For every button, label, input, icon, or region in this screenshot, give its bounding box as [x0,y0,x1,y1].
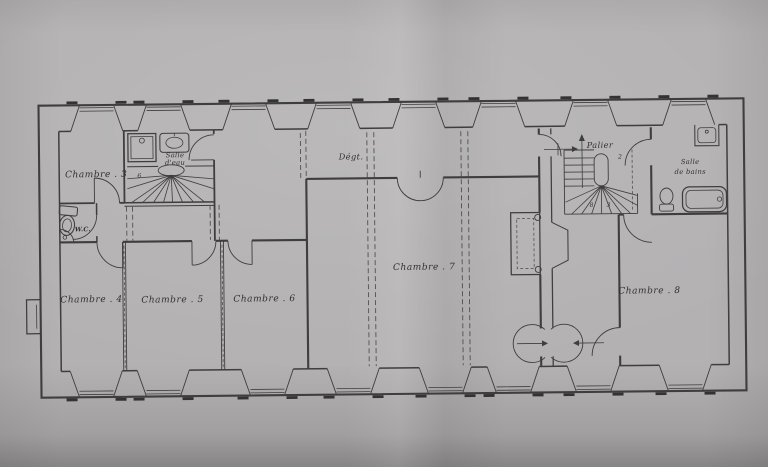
room-label-salle-bains-line1: Salle [681,158,700,166]
door-swing-chambre5 [192,241,216,265]
window [133,370,193,399]
direction-arrows [515,143,604,347]
arrow-left-icon [573,340,579,346]
double-door-swing-chambre7 [397,170,443,200]
door-swing-chambre3 [94,178,119,203]
door-swings [72,130,653,367]
stair-number-top: 2 [617,154,622,161]
flue-niche [552,222,568,268]
sink-salle-bains [695,125,719,146]
window [563,366,623,395]
arrow-right-icon [542,340,548,346]
window [658,96,718,125]
stair-number-b: 3 [607,202,611,209]
window [468,98,528,127]
window [66,102,126,131]
interior-walls [59,124,729,371]
window [237,369,297,398]
exterior-walls [24,98,746,398]
room-label-chambre-3: Chambre . 3 [65,170,127,181]
room-label-chambre-5: Chambre . 5 [141,295,203,306]
room-label-palier: Palier [586,140,614,150]
stair-number-left: 6 [137,173,141,180]
up-arrow-icon [579,134,585,141]
room-label-wc: W.C. [75,226,91,233]
stair-number-a: 8 [590,202,594,209]
door-swing-chambre6 [228,240,252,264]
door-swing-salle-bains [625,139,651,165]
door-swing-chambre8-west [592,328,620,356]
fireplace [511,212,542,274]
window [388,99,448,128]
window [323,368,383,397]
door-swing-chambre8-north [624,214,652,242]
door-swing-salle-eau [189,135,214,160]
room-label-degagement: Dégt. [338,151,364,161]
shower-tray [128,133,156,161]
window [415,367,475,396]
window [133,102,193,131]
window [560,97,620,126]
room-label-chambre-8: Chambre . 8 [618,286,680,297]
door-swing-chambre4 [97,242,123,268]
room-labels: Chambre . 3 Chambre . 4 Chambre . 5 Cham… [59,139,708,307]
room-label-chambre-7: Chambre . 7 [393,262,455,273]
bathtub [682,186,726,211]
window [655,365,715,394]
toilet-salle-bains [659,188,673,211]
window [483,366,543,395]
arrow-right-icon [572,146,578,152]
service-stair [127,164,214,202]
window [66,371,126,400]
stair-direction-line [582,138,583,188]
photographed-floor-plan: Chambre . 3 Chambre . 4 Chambre . 5 Cham… [0,0,768,467]
floor-plan-svg: Chambre . 3 Chambre . 4 Chambre . 5 Cham… [0,0,768,467]
room-label-chambre-4: Chambre . 4 [60,295,122,306]
window [303,100,363,129]
room-label-salle-bains-line2: de bains [674,168,706,176]
chimney-breast-exterior [27,300,41,334]
room-label-chambre-6: Chambre . 6 [233,294,295,305]
room-label-salle-eau-line2: d'eau [165,159,185,167]
window [218,101,278,130]
sink-salle-eau [160,133,189,152]
